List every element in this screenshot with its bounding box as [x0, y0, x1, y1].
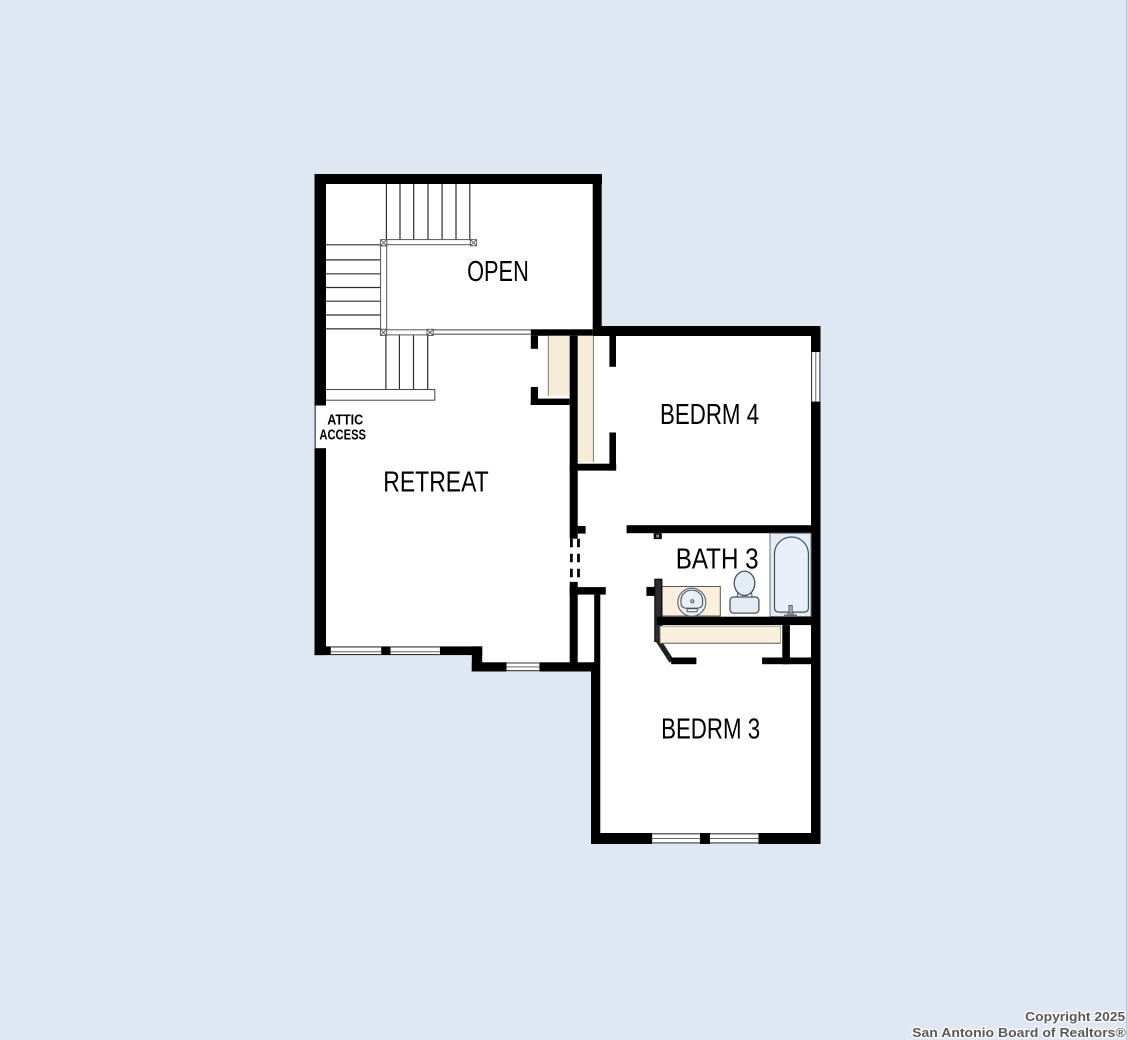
svg-text:OPEN: OPEN [467, 256, 529, 288]
svg-text:Copyright 2025: Copyright 2025 [1025, 1009, 1125, 1024]
svg-text:BATH 3: BATH 3 [676, 543, 759, 575]
svg-text:RETREAT: RETREAT [383, 467, 488, 499]
svg-text:ATTIC: ATTIC [327, 412, 363, 428]
svg-text:ACCESS: ACCESS [319, 427, 366, 443]
svg-text:BEDRM 4: BEDRM 4 [660, 399, 759, 431]
svg-text:BEDRM 3: BEDRM 3 [661, 713, 760, 745]
svg-text:San Antonio Board of Realtors®: San Antonio Board of Realtors® [912, 1025, 1126, 1040]
